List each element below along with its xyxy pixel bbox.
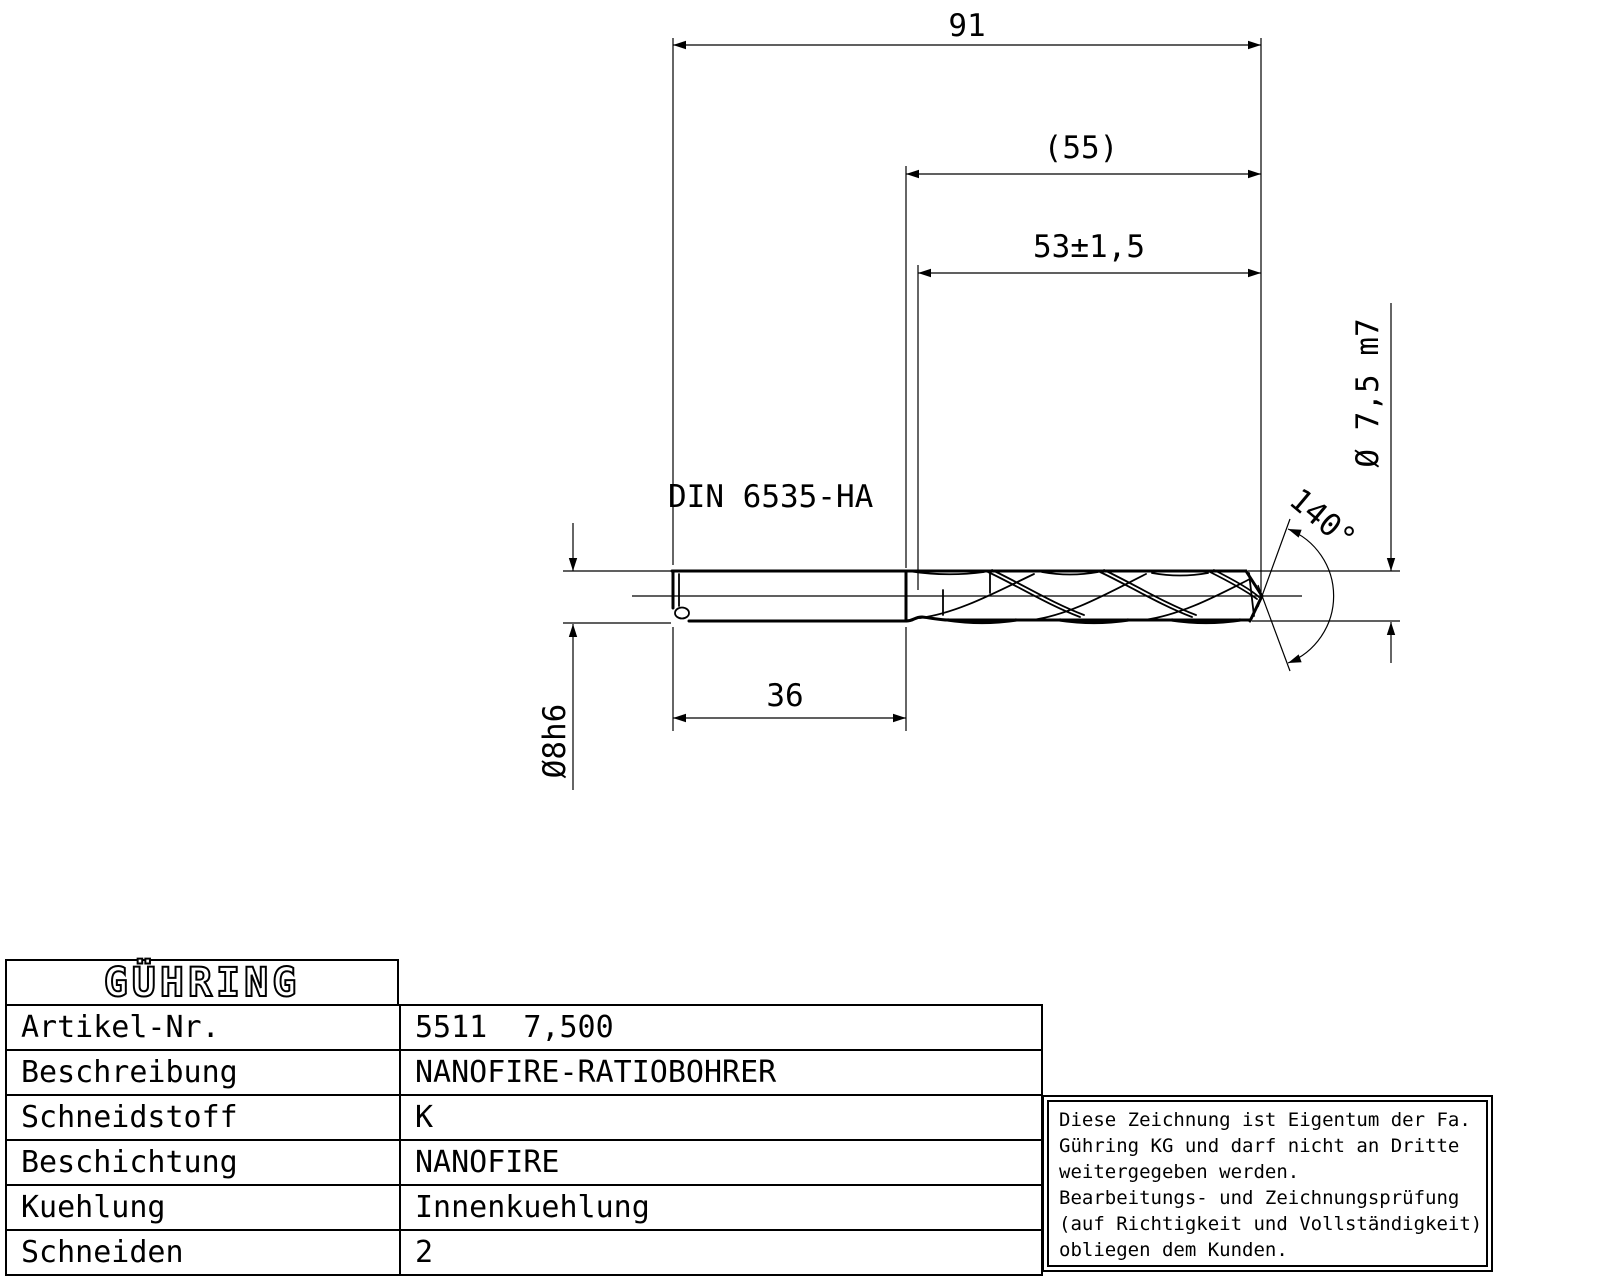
notice-line: weitergegeben werden. [1059,1159,1482,1185]
row-label: Beschichtung [6,1140,400,1185]
row-label: Artikel-Nr. [6,1005,400,1050]
dim-point-angle: 140° [1258,482,1363,671]
row-value: 2 [400,1230,1042,1275]
table-row: Schneiden 2 [6,1230,1042,1275]
dim-shank-diameter-label: Ø8h6 [537,704,573,779]
dim-shank-length-label: 36 [766,678,803,714]
drawing-sheet: 91 (55) 53±1,5 36 Ø8h [0,0,1600,1280]
row-label: Schneiden [6,1230,400,1275]
table-row: Kuehlung Innenkuehlung [6,1185,1042,1230]
extension-lines [563,38,1400,731]
table-row: Schneidstoff K [6,1095,1042,1140]
row-value: NANOFIRE-RATIOBOHRER [400,1050,1042,1095]
logo-cell: GÜHRING [5,959,399,1006]
row-value: NANOFIRE [400,1140,1042,1185]
dim-flute-ref-length: (55) [906,130,1261,178]
notice-line: (auf Richtigkeit und Vollständigkeit) [1059,1211,1482,1237]
dim-drill-diameter-label: Ø 7,5 m7 [1350,318,1386,467]
ownership-notice: Diese Zeichnung ist Eigentum der Fa. Güh… [1042,1095,1493,1272]
table-row: Beschreibung NANOFIRE-RATIOBOHRER [6,1050,1042,1095]
notice-line: Bearbeitungs- und Zeichnungsprüfung [1059,1185,1482,1211]
dim-flute-length-label: 53±1,5 [1033,229,1145,265]
table-row: Beschichtung NANOFIRE [6,1140,1042,1185]
dim-shank-length: 36 [673,678,906,722]
row-label: Kuehlung [6,1185,400,1230]
row-label: Beschreibung [6,1050,400,1095]
row-label: Schneidstoff [6,1095,400,1140]
row-value: K [400,1095,1042,1140]
dim-drill-diameter: Ø 7,5 m7 [1350,303,1395,663]
notice-line: obliegen dem Kunden. [1059,1237,1482,1263]
title-block-table: Artikel-Nr. 5511 7,500 Beschreibung NANO… [5,1004,1043,1276]
ownership-notice-frame: Diese Zeichnung ist Eigentum der Fa. Güh… [1047,1100,1488,1267]
dim-shank-diameter: Ø8h6 [537,523,577,790]
table-row: Artikel-Nr. 5511 7,500 [6,1005,1042,1050]
dim-flute-length: 53±1,5 [918,229,1261,277]
notice-line: Diese Zeichnung ist Eigentum der Fa. [1059,1107,1482,1133]
dim-overall-length: 91 [673,8,1261,49]
guehring-logo: GÜHRING [104,960,301,1006]
row-value: 5511 7,500 [400,1005,1042,1050]
technical-drawing: 91 (55) 53±1,5 36 Ø8h [0,0,1600,940]
notice-line: Gühring KG und darf nicht an Dritte [1059,1133,1482,1159]
shank-standard-label: DIN 6535-HA [668,479,874,515]
dim-overall-length-label: 91 [948,8,985,44]
row-value: Innenkuehlung [400,1185,1042,1230]
dim-point-angle-label: 140° [1282,482,1362,558]
dim-flute-ref-label: (55) [1044,130,1119,166]
